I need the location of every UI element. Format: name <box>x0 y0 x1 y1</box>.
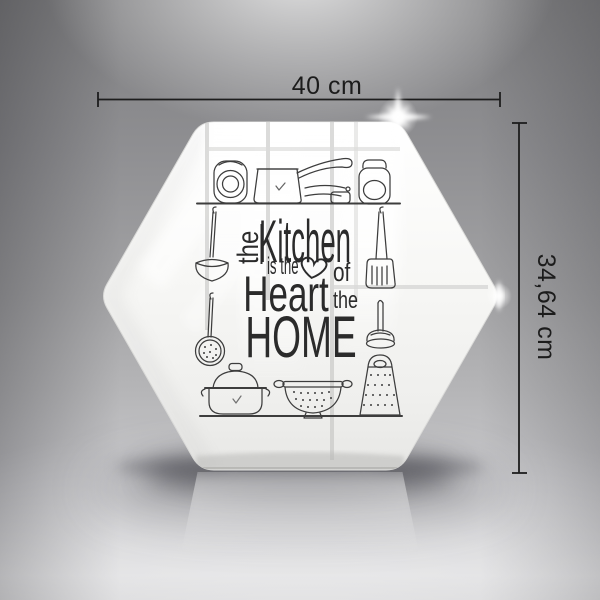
width-dimension: 40 cm <box>98 72 500 107</box>
quote-home: HOME <box>245 306 356 370</box>
width-label: 40 cm <box>292 72 363 100</box>
product-scene: 40 cm <box>0 0 600 600</box>
panel-quote: the Kitchen is the of Heart the HOME <box>230 208 358 370</box>
height-dimension: 34,64 cm <box>512 123 560 473</box>
scene-graphic: 40 cm <box>0 0 600 600</box>
height-label: 34,64 cm <box>532 254 560 361</box>
glass-panel: the Kitchen is the of Heart the HOME <box>100 87 512 470</box>
quote-of: of <box>333 258 351 287</box>
